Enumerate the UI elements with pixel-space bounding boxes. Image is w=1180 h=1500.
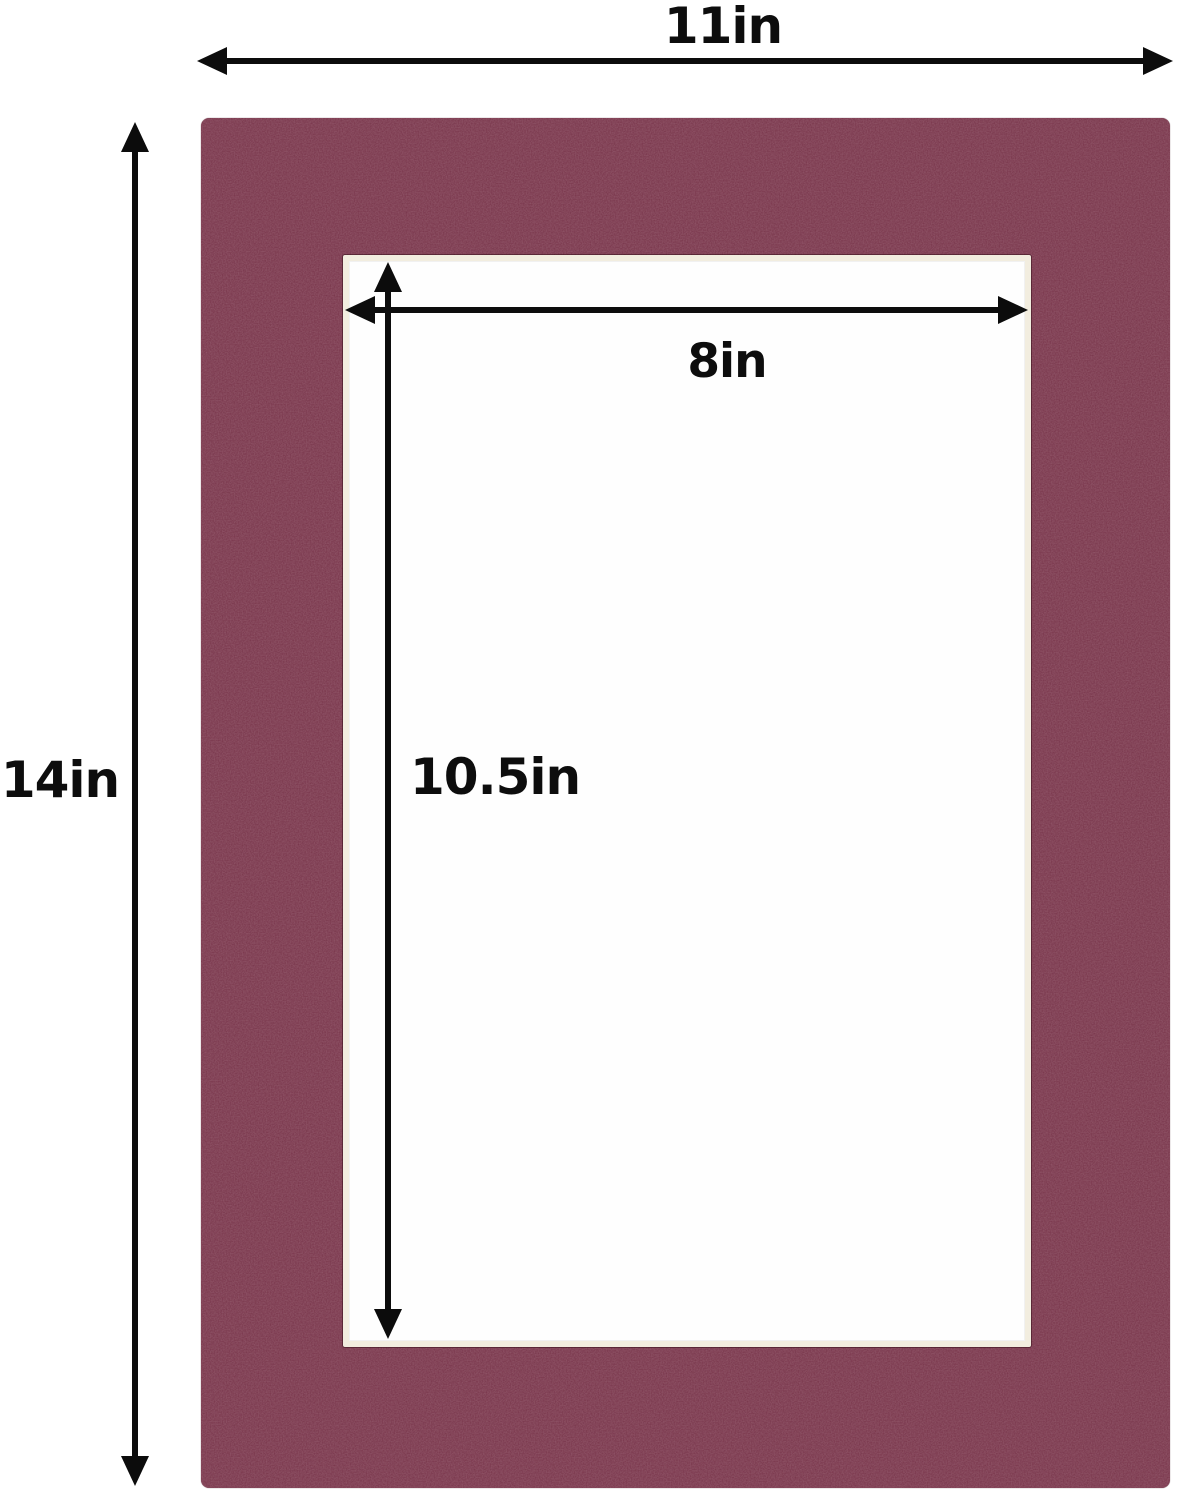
- arrow-shaft: [385, 288, 391, 1313]
- arrowhead-down: [374, 1309, 402, 1339]
- arrow-shaft: [132, 148, 138, 1460]
- arrowhead-right: [1143, 47, 1173, 75]
- outer-width-label: 11in: [623, 0, 823, 54]
- outer-height-arrow: [121, 122, 149, 1486]
- opening-width-arrow: [345, 296, 1028, 324]
- dimension-diagram: 11in 14in 8in 10.5in: [0, 0, 1180, 1500]
- outer-height-label: 14in: [0, 753, 125, 808]
- opening-height-arrow: [374, 262, 402, 1339]
- arrow-shaft: [223, 58, 1147, 64]
- opening-width-label: 8in: [627, 336, 827, 388]
- arrow-shaft: [371, 307, 1002, 313]
- arrowhead-right: [998, 296, 1028, 324]
- arrowhead-down: [121, 1456, 149, 1486]
- opening-height-label: 10.5in: [410, 750, 580, 805]
